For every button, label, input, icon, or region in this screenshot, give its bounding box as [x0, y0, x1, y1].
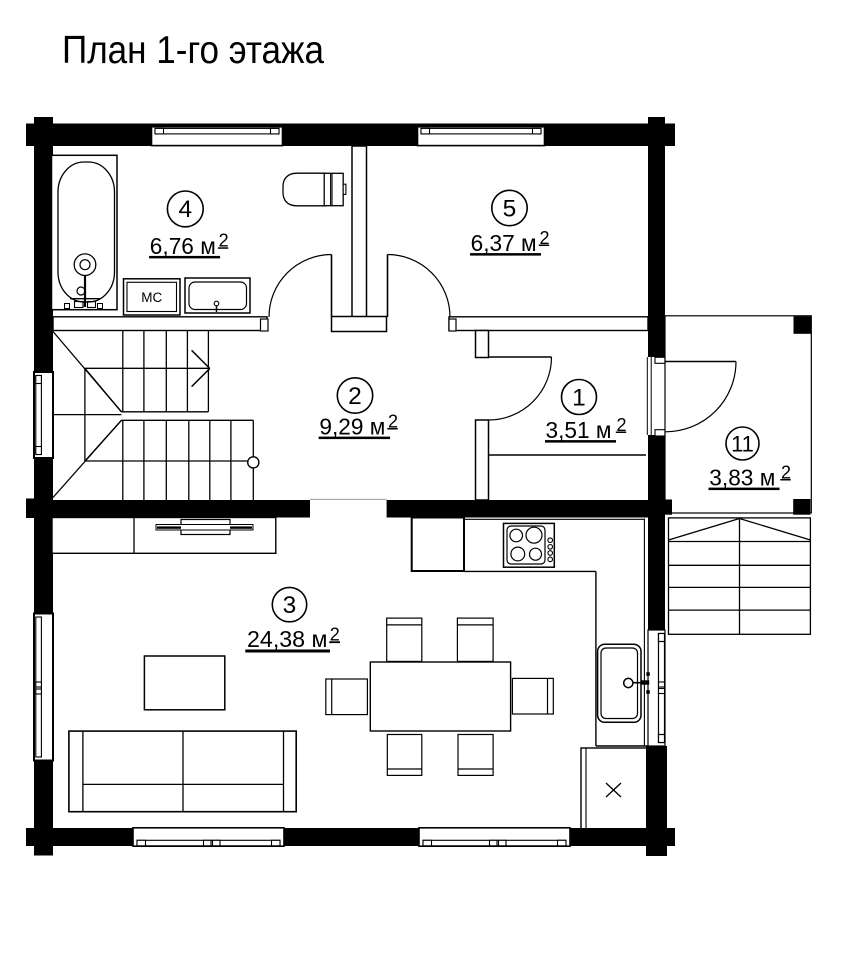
svg-text:3: 3 [283, 592, 297, 619]
svg-text:План 1-го этажа: План 1-го этажа [62, 29, 324, 72]
svg-text:МС: МС [141, 290, 162, 305]
svg-text:3,51 м: 3,51 м [546, 417, 612, 443]
svg-text:11: 11 [731, 431, 754, 456]
svg-text:24,38 м: 24,38 м [247, 626, 328, 652]
svg-text:4: 4 [178, 196, 192, 223]
svg-text:9,29 м: 9,29 м [319, 414, 385, 440]
svg-text:2: 2 [348, 383, 362, 410]
svg-text:5: 5 [503, 195, 517, 222]
svg-text:6,76 м: 6,76 м [150, 233, 216, 259]
svg-text:3,83 м: 3,83 м [709, 465, 775, 491]
svg-text:1: 1 [572, 384, 586, 411]
svg-text:6,37 м: 6,37 м [471, 230, 537, 256]
